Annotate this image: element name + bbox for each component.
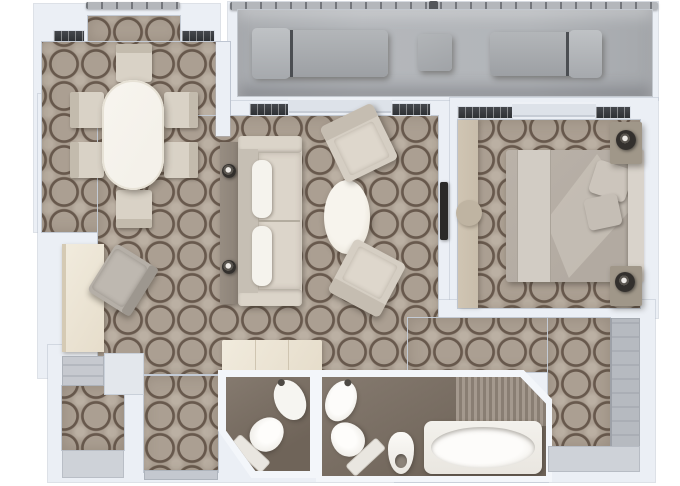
- bay-floor: [88, 16, 180, 42]
- bench-seam: [288, 340, 289, 372]
- balcony-railing: [230, 2, 658, 10]
- bay-window: [54, 31, 84, 41]
- sofa-pillow: [252, 160, 272, 218]
- entry-closet: [62, 356, 104, 386]
- living-window: [392, 104, 430, 115]
- lounger-seam: [566, 32, 569, 76]
- bay-railing: [86, 2, 180, 9]
- bedroom-window: [458, 107, 512, 118]
- table-lamp: [222, 260, 236, 274]
- bedroom-balcony-door: [512, 102, 596, 117]
- sun-lounger: [490, 32, 602, 76]
- dining-chair: [164, 142, 198, 178]
- hall-floor: [144, 376, 218, 472]
- closet-mat: [62, 450, 124, 478]
- sofa: [238, 136, 302, 306]
- bathtub: [424, 421, 542, 474]
- storage-bench: [222, 340, 322, 372]
- bench-seam: [255, 340, 256, 372]
- dining-chair: [116, 44, 152, 82]
- living-window: [250, 104, 288, 115]
- wardrobe-floor: [548, 318, 610, 448]
- dining-chair: [70, 142, 104, 178]
- wardrobe: [610, 318, 640, 448]
- dining-chair: [116, 190, 152, 228]
- sun-lounger: [252, 30, 388, 77]
- entry-door-mat: [144, 470, 218, 480]
- bedroom-window: [596, 107, 630, 118]
- bedside-lamp: [615, 272, 635, 292]
- lounger-seam: [290, 30, 293, 77]
- side-table: [418, 34, 452, 71]
- sofa-seat-seam: [258, 220, 300, 222]
- bidet: [388, 432, 414, 474]
- floor-plan: [0, 0, 680, 486]
- double-bed: [506, 150, 638, 282]
- table-lamp: [222, 164, 236, 178]
- bay-window: [182, 31, 214, 41]
- balcony-door: [288, 98, 392, 113]
- entry-cabinet: [104, 353, 144, 395]
- entry-nook-floor: [62, 386, 124, 450]
- bathtub-basin: [431, 427, 535, 468]
- bidet-drain: [395, 454, 407, 468]
- wardrobe-floor-mat: [548, 446, 640, 472]
- sofa-pillow: [252, 226, 272, 286]
- wall-tv: [440, 182, 448, 240]
- writing-desk: [62, 244, 104, 352]
- lounger-backrest: [569, 30, 602, 78]
- lounger-backrest: [252, 28, 290, 79]
- dining-chair: [164, 92, 198, 128]
- dresser-stool: [456, 200, 482, 226]
- headboard: [628, 150, 644, 282]
- master-bathroom-floor: [322, 377, 546, 476]
- oval-dining-table: [102, 80, 164, 190]
- wall-structure: [216, 42, 230, 136]
- bed-throw: [517, 150, 551, 282]
- dining-chair: [70, 92, 104, 128]
- bed-pillow: [583, 193, 623, 231]
- bedside-lamp: [616, 130, 636, 150]
